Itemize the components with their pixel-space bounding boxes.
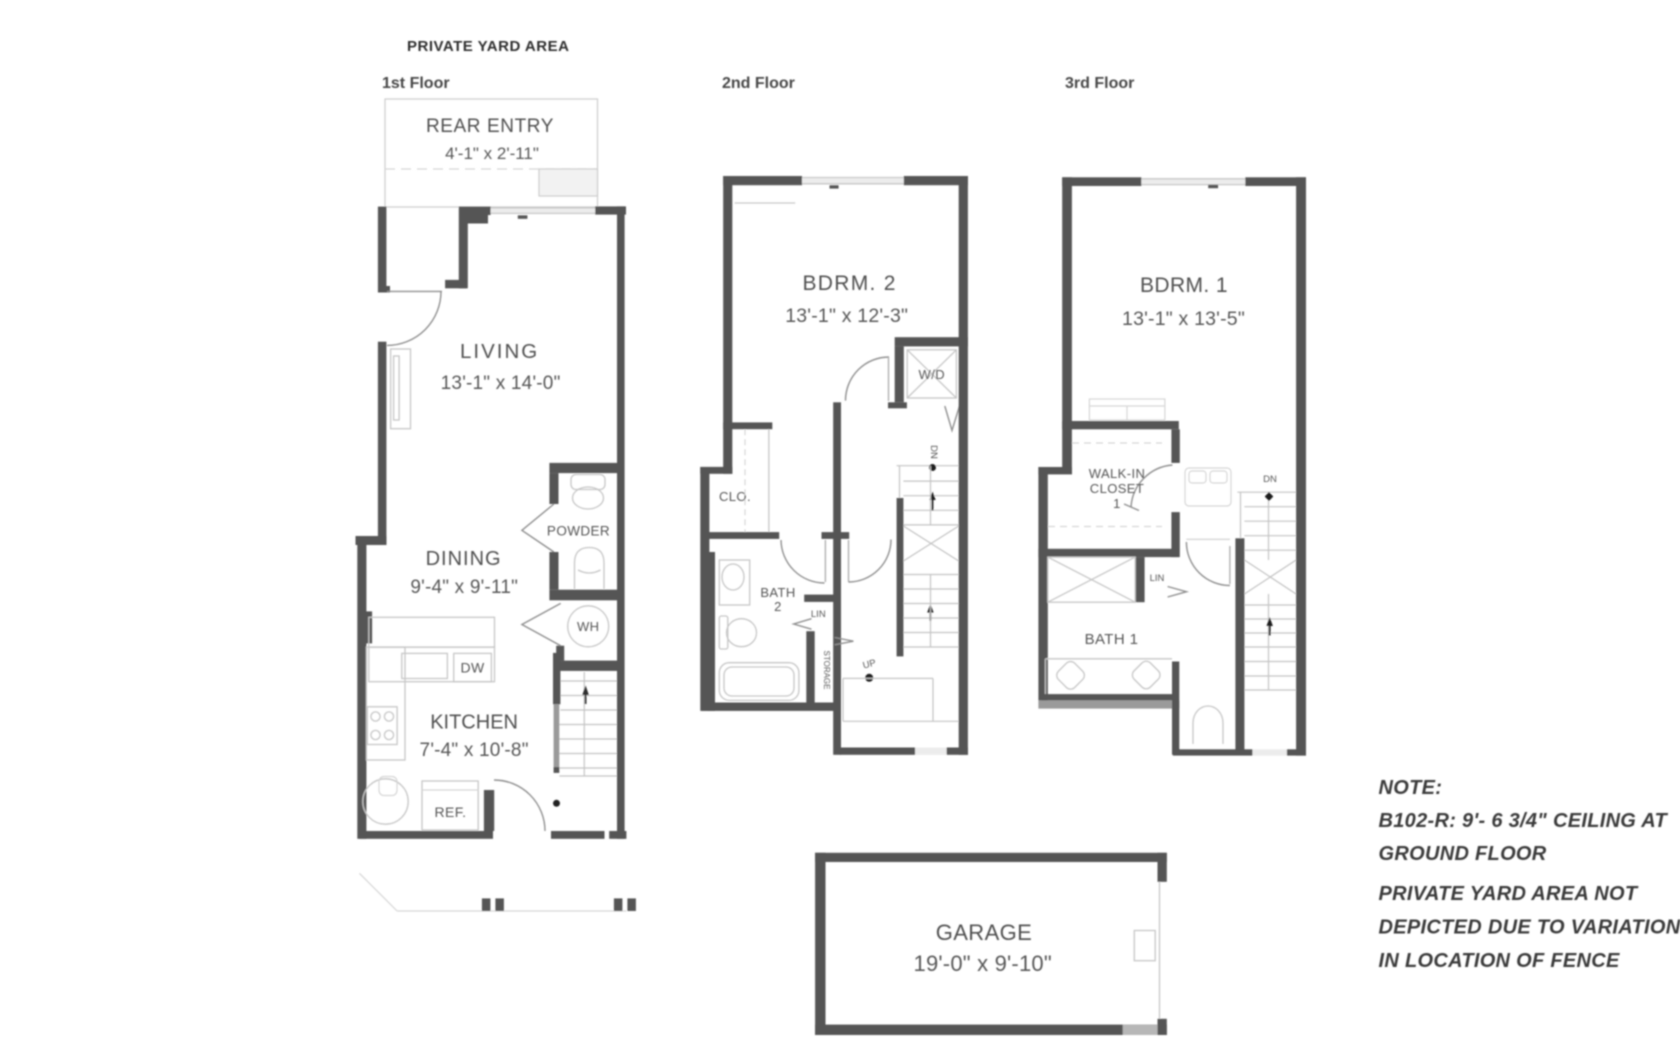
- svg-text:BATH 1: BATH 1: [1085, 631, 1139, 648]
- svg-text:WH: WH: [577, 619, 599, 634]
- svg-text:1: 1: [1113, 496, 1121, 511]
- svg-text:DN: DN: [1263, 474, 1277, 485]
- svg-text:WALK-IN: WALK-IN: [1089, 466, 1146, 481]
- svg-text:3rd Floor: 3rd Floor: [1065, 75, 1134, 92]
- svg-text:13'-1" x 12'-3": 13'-1" x 12'-3": [785, 305, 908, 327]
- svg-text:LIN: LIN: [811, 609, 826, 620]
- svg-text:GROUND FLOOR: GROUND FLOOR: [1379, 843, 1547, 865]
- svg-text:W/D: W/D: [919, 367, 945, 382]
- svg-text:19'-0" x 9'-10": 19'-0" x 9'-10": [914, 951, 1052, 976]
- svg-text:REF.: REF.: [435, 804, 467, 820]
- svg-text:LIVING: LIVING: [460, 340, 539, 363]
- svg-text:DN: DN: [928, 445, 939, 459]
- svg-text:BATH: BATH: [760, 585, 795, 600]
- svg-text:POWDER: POWDER: [547, 524, 610, 539]
- svg-text:KITCHEN: KITCHEN: [430, 712, 518, 734]
- svg-text:REAR ENTRY: REAR ENTRY: [426, 116, 554, 137]
- svg-text:13'-1" x 14'-0": 13'-1" x 14'-0": [441, 373, 561, 394]
- svg-text:4'-1" x 2'-11": 4'-1" x 2'-11": [445, 144, 539, 163]
- svg-text:13'-1" x 13'-5": 13'-1" x 13'-5": [1122, 308, 1245, 330]
- svg-text:DEPICTED DUE TO VARIATIONS: DEPICTED DUE TO VARIATIONS: [1379, 917, 1680, 939]
- svg-text:9'-4" x 9'-11": 9'-4" x 9'-11": [410, 577, 518, 598]
- svg-text:DW: DW: [460, 660, 485, 676]
- svg-text:DINING: DINING: [426, 548, 502, 570]
- svg-text:2: 2: [774, 599, 782, 614]
- svg-text:GARAGE: GARAGE: [936, 920, 1033, 945]
- svg-text:CLO.: CLO.: [719, 489, 751, 504]
- svg-text:B102-R: 9'- 6 3/4" CEILING AT: B102-R: 9'- 6 3/4" CEILING AT: [1379, 810, 1669, 832]
- svg-text:BDRM. 2: BDRM. 2: [802, 272, 896, 295]
- svg-text:STORAGE: STORAGE: [822, 651, 831, 690]
- svg-text:NOTE:: NOTE:: [1379, 777, 1443, 799]
- svg-text:LIN: LIN: [1150, 573, 1165, 584]
- svg-text:PRIVATE YARD AREA: PRIVATE YARD AREA: [407, 38, 569, 55]
- svg-text:1st Floor: 1st Floor: [382, 75, 450, 92]
- svg-text:7'-4" x 10'-8": 7'-4" x 10'-8": [420, 740, 529, 761]
- svg-text:IN LOCATION OF FENCE: IN LOCATION OF FENCE: [1379, 950, 1621, 972]
- svg-text:BDRM. 1: BDRM. 1: [1140, 274, 1228, 297]
- svg-text:2nd Floor: 2nd Floor: [722, 75, 795, 92]
- svg-text:CLOSET: CLOSET: [1090, 481, 1144, 496]
- svg-text:PRIVATE YARD AREA NOT: PRIVATE YARD AREA NOT: [1379, 883, 1639, 905]
